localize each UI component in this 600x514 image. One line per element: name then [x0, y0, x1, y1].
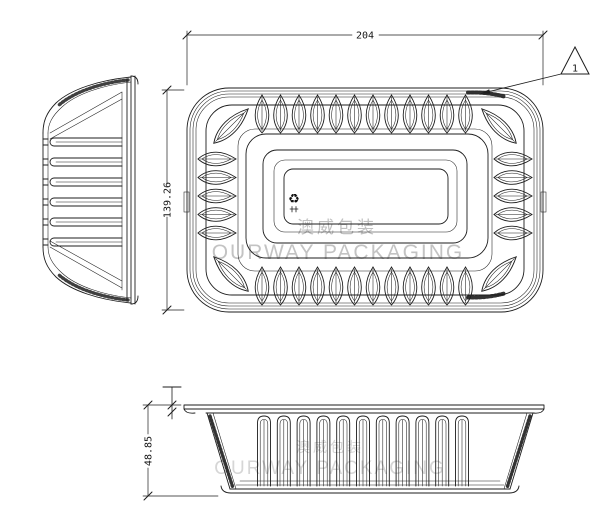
svg-text:♻: ♻	[288, 192, 300, 207]
floor-step-1	[246, 134, 488, 258]
watermark-english-top: OURWAY PACKAGING	[212, 241, 465, 264]
flange-section	[184, 405, 544, 409]
top-view: ♻	[184, 88, 546, 312]
watermark-chinese-top: 澳威包装	[297, 218, 377, 237]
recycling-icon: ♻	[288, 192, 300, 212]
revision-number: 1	[572, 64, 578, 75]
width-dimension: 204	[183, 31, 547, 86]
depth-dimension-value: 139.26	[163, 182, 174, 218]
top-view-ribs	[198, 95, 532, 305]
front-view	[184, 405, 544, 493]
rib	[255, 95, 269, 133]
height-dimension-value: 48.85	[144, 436, 155, 466]
depth-dimension: 139.26	[162, 86, 184, 314]
knurl-patch-bottom-right	[468, 294, 504, 298]
side-view	[43, 76, 138, 304]
right-edge-tab	[541, 192, 546, 212]
floor-step-4	[284, 169, 448, 224]
revision-triangle: 1	[481, 47, 589, 94]
height-dimension: 48.85	[143, 401, 218, 500]
flange-thickness-dimension	[163, 387, 181, 419]
drawing-canvas: 澳威包装 OURWAY PACKAGING 澳威包装 OURWAY PACKAG…	[0, 0, 600, 514]
side-view-ribs	[43, 138, 122, 246]
wall-top-edge	[206, 105, 524, 295]
knurl-band-right	[507, 416, 530, 488]
tray-technical-drawing: 澳威包装 OURWAY PACKAGING 澳威包装 OURWAY PACKAG…	[0, 0, 600, 514]
left-edge-tab	[184, 192, 189, 212]
width-dimension-value: 204	[356, 31, 374, 42]
